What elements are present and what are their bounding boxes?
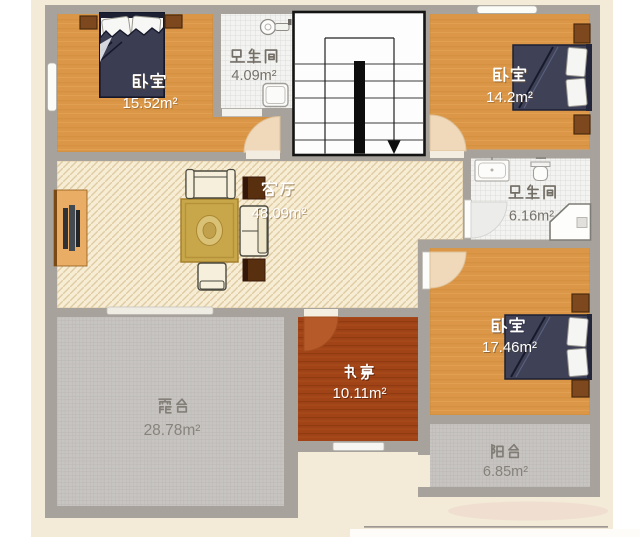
svg-text:10.11m²: 10.11m² bbox=[333, 385, 387, 402]
svg-text:6.85m²: 6.85m² bbox=[483, 464, 528, 480]
svg-text:17.46m²: 17.46m² bbox=[482, 339, 537, 356]
svg-text:14.2m²: 14.2m² bbox=[486, 89, 533, 106]
svg-text:28.78m²: 28.78m² bbox=[144, 422, 201, 439]
svg-text:6.16m²: 6.16m² bbox=[509, 209, 554, 225]
svg-text:4.09m²: 4.09m² bbox=[231, 68, 276, 84]
svg-text:48.09m²: 48.09m² bbox=[251, 205, 306, 222]
svg-text:15.52m²: 15.52m² bbox=[122, 95, 177, 112]
